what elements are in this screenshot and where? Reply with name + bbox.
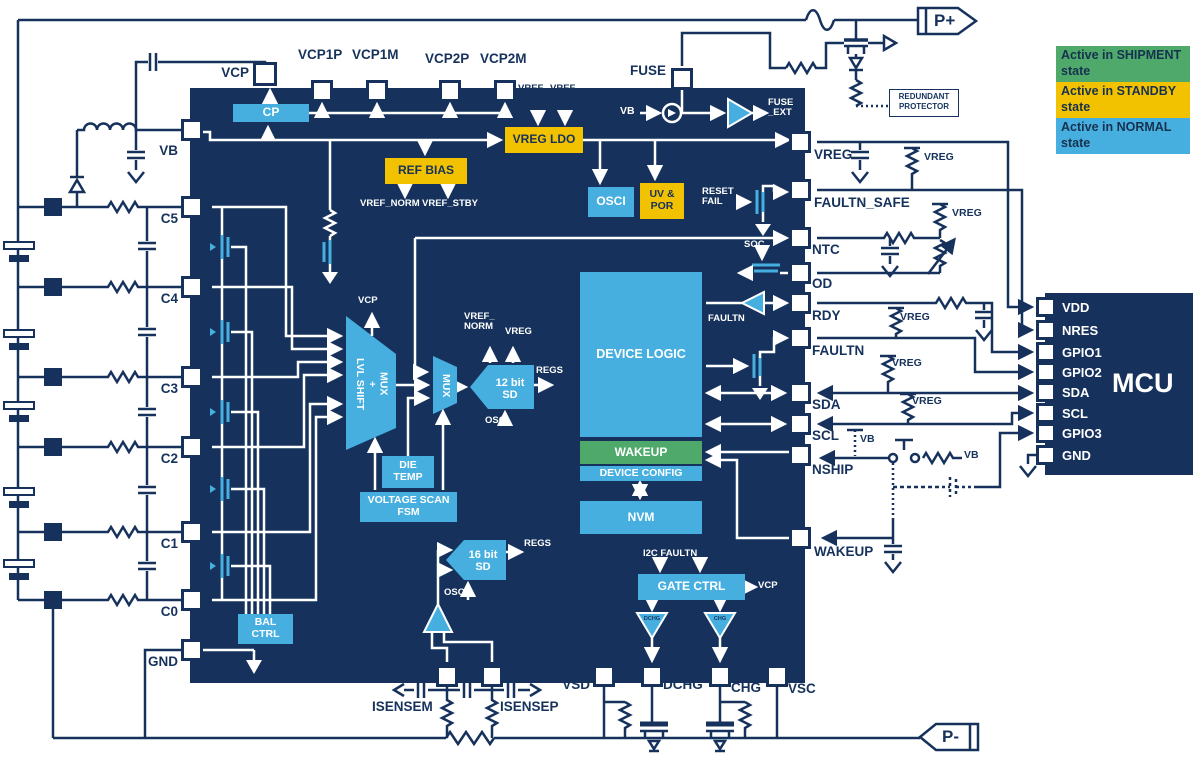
mcu-label-scl: SCL (1062, 406, 1088, 421)
pin-vcp2p (439, 80, 461, 102)
label-osci-12bit: OSCI (485, 416, 508, 426)
pin-label-gnd: GND (126, 655, 178, 669)
pin-label-c5: C5 (138, 212, 178, 226)
dchg-driver-label: DCHG (640, 616, 664, 622)
mcu-pin-gpio2 (1036, 362, 1056, 382)
pin-label-wakeup: WAKEUP (814, 545, 873, 559)
block-12bit-sd: 12 bit SD (486, 372, 534, 406)
mcu-label-gnd: GND (1062, 448, 1091, 463)
block-device-config: DEVICE CONFIG (580, 466, 702, 481)
pin-label-c0: C0 (138, 605, 178, 619)
mcu-label-gpio3: GPIO3 (1062, 426, 1102, 441)
label-pullup-vreg-2: VREG (952, 208, 982, 219)
mcu-pin-nres (1036, 320, 1056, 340)
pin-wakeup (789, 527, 811, 549)
pin-label-vcp2p: VCP2P (425, 52, 469, 66)
label-i2c-faultn: I2C FAULTN (643, 549, 697, 559)
mcu-pin-gnd (1036, 445, 1056, 465)
pin-chg (709, 665, 731, 687)
shunt-resistor-icon (446, 732, 494, 744)
pin-label-isensem: ISENSEM (372, 700, 433, 714)
wakeup-cap-icon (884, 538, 902, 572)
pin-nship (789, 444, 811, 466)
pin-label-vcp: VCP (207, 66, 249, 80)
label-fuse-ext: FUSE _EXT (768, 98, 793, 118)
pin-vsd (593, 665, 615, 687)
mcu-title: MCU (1112, 368, 1174, 399)
label-button-vb: VB (964, 450, 979, 461)
pin-c3 (181, 366, 203, 388)
block-16bit-sd: 16 bit SD (460, 546, 506, 576)
battery-tap-node (44, 438, 62, 456)
label-osci-16bit: OSCI (444, 588, 467, 598)
pin-label-isensep: ISENSEP (500, 700, 559, 714)
pin-vcp1p (311, 80, 333, 102)
mcu-pin-gpio1 (1036, 342, 1056, 362)
block-device-logic: DEVICE LOGIC (580, 272, 702, 437)
pin-fuse (671, 68, 693, 90)
label-reset-fail: RESET FAIL (702, 187, 740, 207)
inductor-icon (77, 124, 181, 131)
block-wakeup: WAKEUP (580, 441, 702, 464)
pushbutton-icon (889, 440, 919, 462)
soc-fet-icon (752, 265, 780, 271)
mcu-label-sda: SDA (1062, 385, 1089, 400)
rdy-cap-icon (975, 303, 993, 340)
pullup-faultn-safe (904, 148, 920, 190)
pin-od (789, 262, 811, 284)
label-pullup-vb: VB (860, 434, 875, 445)
block-bal-ctrl: BAL CTRL (238, 614, 293, 644)
pin-vsc (766, 665, 788, 687)
mcu-pin-gpio3 (1036, 423, 1056, 443)
diagram-canvas: CP VREG LDO REF BIAS OSCI UV & POR DEVIC… (0, 0, 1200, 757)
label-pullup-vreg-1: VREG (924, 152, 954, 163)
battery-tap-node (44, 198, 62, 216)
vreg-cap-icon (851, 142, 869, 182)
pin-label-vb: VB (138, 144, 178, 158)
label-pullup-vreg-3: VREG (900, 312, 930, 323)
mcu-pin-scl (1036, 403, 1056, 423)
pullup-ntc (932, 204, 948, 238)
pin-label-fuse: FUSE (622, 64, 666, 78)
block-gate-ctrl: GATE CTRL (638, 574, 745, 600)
pin-isensep (481, 665, 503, 687)
reset-fet-icon (757, 190, 763, 214)
pin-c4 (181, 276, 203, 298)
block-mux: MUX (434, 360, 456, 412)
faultn-buffer-icon (742, 292, 764, 314)
label-vref-stby-ldo: VREF_ STBY (550, 84, 581, 104)
p-minus-label: P- (942, 727, 959, 747)
pin-label-nship: NSHIP (812, 463, 853, 477)
fuse-buffer-icon (728, 99, 752, 127)
label-vb-fuse: VB (620, 106, 635, 117)
pin-vreg (789, 131, 811, 153)
block-vreg-ldo: VREG LDO (505, 127, 583, 153)
mcu-label-gpio1: GPIO1 (1062, 345, 1102, 360)
pin-ntc (789, 227, 811, 249)
pin-rdy (789, 292, 811, 314)
pin-label-chg: CHG (731, 681, 761, 695)
pin-vcp (253, 62, 277, 86)
thermistor-icon (928, 240, 954, 274)
pin-faultn (789, 327, 811, 349)
pin-label-vcp2m: VCP2M (480, 52, 527, 66)
pin-label-dchg: DCHG (663, 678, 703, 692)
pin-label-rdy: RDY (812, 309, 841, 323)
battery-tap-node (44, 368, 62, 386)
pin-label-faultn: FAULTN (812, 344, 864, 358)
label-vreg-12bit: VREG (505, 327, 532, 337)
block-die-temp: DIE TEMP (382, 456, 434, 488)
label-vref-stby: VREF_STBY (422, 199, 478, 209)
diode-icon (70, 130, 84, 207)
pin-vb (181, 119, 203, 141)
block-ref-bias: REF BIAS (385, 158, 467, 184)
redundant-protector-circuit (682, 20, 896, 106)
pin-label-vcp1m: VCP1M (352, 48, 399, 62)
block-lvl-shift-mux: LVL SHIFT + MUX (349, 326, 393, 442)
pin-c0 (181, 589, 203, 611)
block-osci: OSCI (588, 187, 634, 217)
pin-faultn-safe (789, 179, 811, 201)
mcu-label-gpio2: GPIO2 (1062, 365, 1102, 380)
pin-vcp2m (494, 80, 516, 102)
battery-tap-node (44, 591, 62, 609)
pin-isensem (436, 665, 458, 687)
mcu-label-vdd: VDD (1062, 300, 1089, 315)
legend-standby: Active in STANDBY state (1056, 82, 1190, 118)
pin-label-sda: SDA (812, 398, 841, 412)
battery-tap-node (44, 278, 62, 296)
pin-label-c1: C1 (138, 537, 178, 551)
label-regs-16bit: REGS (524, 539, 551, 549)
block-nvm: NVM (580, 501, 702, 534)
mcu-pin-sda (1036, 382, 1056, 402)
label-regs-12bit: REGS (536, 366, 563, 376)
optional-fet-icon (893, 477, 974, 497)
pin-label-od: OD (812, 277, 832, 291)
block-cp: CP (233, 104, 309, 122)
pin-label-c4: C4 (138, 292, 178, 306)
legend-shipment: Active in SHIPMENT state (1056, 46, 1190, 82)
p-plus-label: P+ (934, 11, 955, 31)
label-faultn-internal: FAULTN (708, 314, 745, 324)
block-uv-por: UV & POR (640, 183, 684, 219)
pin-label-c2: C2 (138, 452, 178, 466)
mcu-pin-vdd (1036, 297, 1056, 317)
pin-label-vsc: VSC (788, 682, 816, 696)
redundant-protector-box: REDUNDANT PROTECTOR (889, 89, 959, 117)
mcu-label-nres: NRES (1062, 323, 1098, 338)
pin-c5 (181, 196, 203, 218)
bias-fet-icon (324, 240, 330, 264)
pin-c2 (181, 436, 203, 458)
pin-vcp1m (366, 80, 388, 102)
fuse-icon (806, 10, 834, 30)
pin-dchg (641, 665, 663, 687)
block-voltage-scan-fsm: VOLTAGE SCAN FSM (360, 492, 457, 522)
current-source-icon (663, 104, 681, 122)
chg-driver-label: CHG (709, 616, 731, 622)
pin-label-ntc: NTC (812, 243, 840, 257)
label-soc: SOC (744, 240, 765, 250)
pin-label-scl: SCL (812, 429, 839, 443)
label-vcp-gatectrl: VCP (758, 581, 778, 591)
isense-amp-icon (424, 604, 452, 632)
label-pullup-vreg-4: VREG (892, 358, 922, 369)
label-vref-norm-ldo: VREF_ NORM (518, 84, 549, 104)
battery-tap-node (44, 523, 62, 541)
pin-sda (789, 382, 811, 404)
ntc-cap-icon (881, 238, 899, 276)
label-vref-norm-12bit: VREF_ NORM (464, 312, 495, 332)
label-vcp-lvl: VCP (358, 296, 378, 306)
pin-c1 (181, 521, 203, 543)
pin-label-vsd: VSD (552, 678, 590, 692)
pin-label-vreg: VREG (814, 148, 852, 162)
label-vref-norm: VREF_NORM (360, 199, 420, 209)
label-pullup-vreg-5: VREG (912, 396, 942, 407)
pin-label-vcp1p: VCP1P (298, 48, 342, 62)
pin-label-faultn-safe: FAULTN_SAFE (814, 196, 910, 210)
legend-normal: Active in NORMAL state (1056, 118, 1190, 154)
pin-label-c3: C3 (138, 382, 178, 396)
pin-gnd (181, 639, 203, 661)
pin-scl (789, 413, 811, 435)
